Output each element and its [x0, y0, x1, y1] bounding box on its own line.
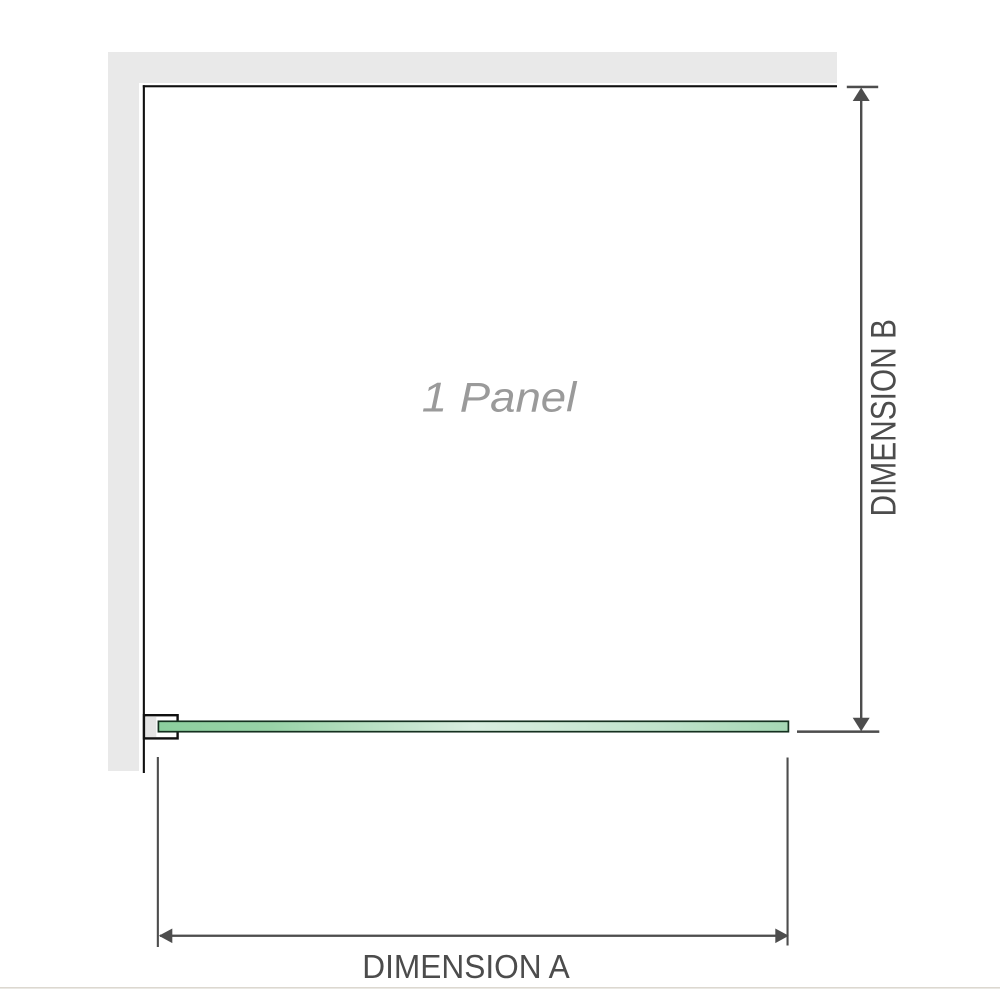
svg-text:DIMENSION B: DIMENSION B — [865, 319, 904, 517]
svg-text:DIMENSION A: DIMENSION A — [362, 948, 570, 985]
svg-text:1 Panel: 1 Panel — [422, 374, 578, 421]
